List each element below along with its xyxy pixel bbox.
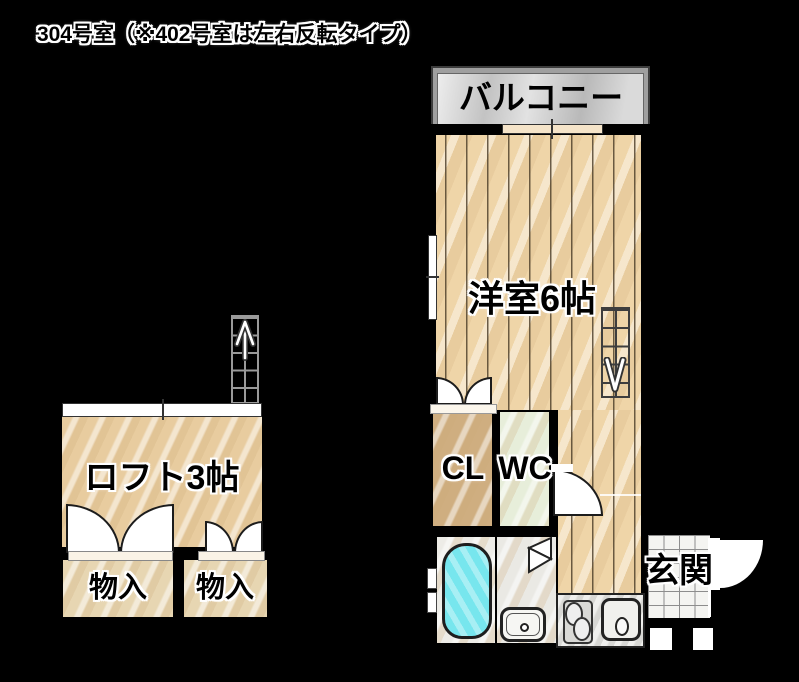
- storage-left-threshold: [68, 551, 173, 561]
- loft-window-tick: [162, 399, 164, 420]
- toilet-label: WC: [498, 452, 551, 484]
- entrance-door-swing: [720, 540, 763, 588]
- kitchen-sink: [601, 598, 641, 641]
- washroom-folding-door-icon: [527, 536, 554, 578]
- storage-right-threshold: [198, 551, 265, 561]
- storage-right-label: 物入: [196, 574, 254, 603]
- bath-window-upper: [427, 568, 437, 589]
- sink-drain: [615, 617, 629, 636]
- washbasin-drain: [520, 623, 529, 632]
- bathtub: [442, 543, 492, 639]
- western-room: [436, 135, 641, 410]
- stove: [563, 600, 593, 644]
- closet-door-left: [436, 377, 464, 405]
- window-center-tick: [551, 119, 553, 139]
- closet-label: CL: [442, 452, 485, 484]
- ladder-up-arrow-icon: [233, 318, 257, 362]
- floor-plan: 304号室（※402号室は左右反転タイプ） バルコニー 洋室6帖 CL WC: [0, 0, 799, 682]
- stove-burners-icon: [565, 602, 591, 642]
- toilet-doorway: [551, 464, 573, 472]
- washbasin: [500, 607, 546, 642]
- entrance-mat-right: [693, 628, 713, 650]
- bath-window-lower: [427, 592, 437, 613]
- entrance-label: 玄関: [645, 554, 713, 588]
- closet-threshold: [430, 404, 497, 414]
- stairs-down-arrow-icon: [603, 357, 627, 395]
- kitchen-counter: [556, 593, 645, 648]
- page-title: 304号室（※402号室は左右反転タイプ）: [37, 24, 422, 45]
- closet-door-right: [464, 377, 492, 405]
- storage-left-label: 物入: [89, 574, 147, 603]
- hall-threshold-line: [600, 494, 641, 496]
- room-window-tick: [426, 276, 439, 278]
- entrance-mat-left: [650, 628, 672, 650]
- western-room-label: 洋室6帖: [468, 281, 596, 317]
- balcony-label: バルコニー: [459, 81, 623, 114]
- loft-label: ロフト3帖: [85, 461, 240, 495]
